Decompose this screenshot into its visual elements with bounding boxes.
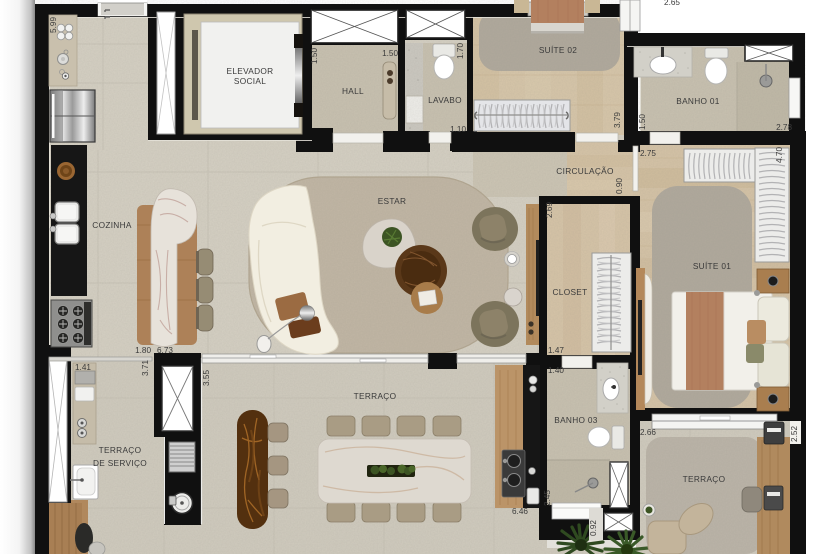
svg-text:COZINHA: COZINHA [92, 220, 132, 230]
svg-text:3.79: 3.79 [613, 112, 622, 128]
svg-text:2.52: 2.52 [790, 426, 799, 442]
svg-text:1.50: 1.50 [310, 48, 319, 64]
svg-text:1.41: 1.41 [75, 363, 91, 372]
svg-text:2.69: 2.69 [545, 202, 554, 218]
svg-text:0.90: 0.90 [615, 178, 624, 194]
svg-text:SOCIAL: SOCIAL [234, 76, 266, 86]
svg-text:3.55: 3.55 [202, 370, 211, 386]
svg-text:0.92: 0.92 [589, 520, 598, 536]
svg-text:HALL: HALL [342, 86, 364, 96]
svg-text:1.70: 1.70 [456, 43, 465, 59]
svg-text:5.99: 5.99 [49, 17, 58, 33]
svg-text:SUÍTE 01: SUÍTE 01 [693, 261, 731, 271]
svg-text:ELEVADOR: ELEVADOR [227, 66, 274, 76]
svg-text:2.75: 2.75 [640, 149, 656, 158]
svg-text:DE SERVIÇO: DE SERVIÇO [93, 458, 147, 468]
svg-text:BANHO 01: BANHO 01 [676, 96, 720, 106]
svg-text:1.10: 1.10 [450, 125, 466, 134]
svg-text:TERRAÇO: TERRAÇO [354, 391, 397, 401]
svg-text:CLOSET: CLOSET [553, 287, 588, 297]
svg-text:1.50: 1.50 [638, 114, 647, 130]
svg-text:2.45: 2.45 [543, 490, 552, 506]
svg-text:SUÍTE 02: SUÍTE 02 [539, 45, 577, 55]
svg-text:TERRAÇO: TERRAÇO [99, 445, 142, 455]
svg-text:1.50: 1.50 [382, 49, 398, 58]
svg-text:6.73: 6.73 [157, 346, 173, 355]
svg-text:1.80: 1.80 [135, 346, 151, 355]
svg-text:4.70: 4.70 [775, 147, 784, 163]
svg-text:2.65: 2.65 [664, 0, 680, 7]
svg-text:ESTAR: ESTAR [378, 196, 407, 206]
svg-text:1.47: 1.47 [548, 346, 564, 355]
svg-text:6.46: 6.46 [512, 507, 528, 516]
svg-text:2.66: 2.66 [640, 428, 656, 437]
svg-text:LAVABO: LAVABO [428, 95, 462, 105]
svg-text:BANHO 03: BANHO 03 [554, 415, 598, 425]
svg-text:TERRAÇO: TERRAÇO [683, 474, 726, 484]
svg-text:2.78: 2.78 [776, 123, 792, 132]
svg-text:CIRCULAÇÃO: CIRCULAÇÃO [556, 166, 614, 176]
svg-text:1.40: 1.40 [548, 366, 564, 375]
svg-text:3.71: 3.71 [141, 360, 150, 376]
